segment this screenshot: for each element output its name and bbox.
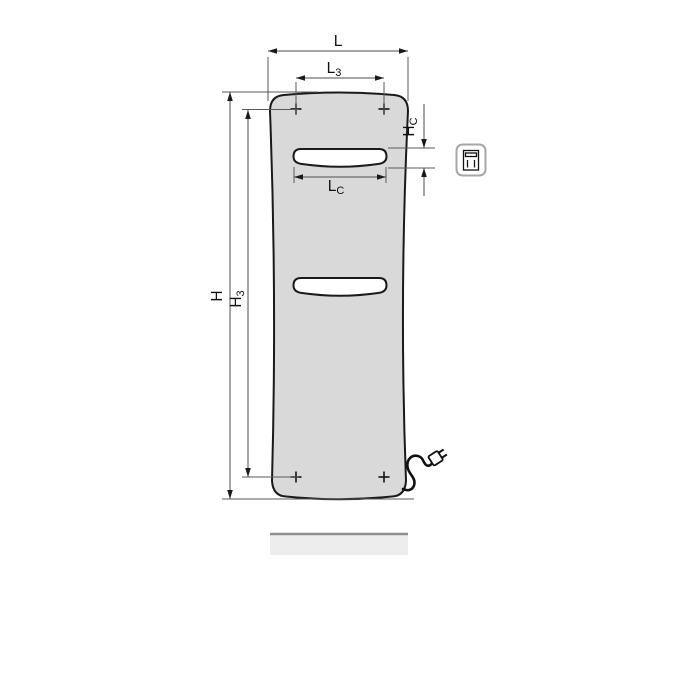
grip-slot-top — [294, 149, 387, 167]
power-cable — [403, 447, 448, 490]
radiator-dimension-diagram: L L3 LC H H3 — [0, 0, 700, 700]
floor-bar — [270, 534, 408, 555]
label-L3: L3 — [327, 60, 342, 79]
label-L: L — [334, 33, 343, 50]
electrical-version-icon — [457, 145, 486, 176]
grip-slot-bottom — [294, 278, 387, 296]
label-H3: H3 — [228, 290, 247, 307]
label-H: H — [209, 290, 226, 301]
diagram-canvas: L L3 LC H H3 — [0, 0, 700, 700]
